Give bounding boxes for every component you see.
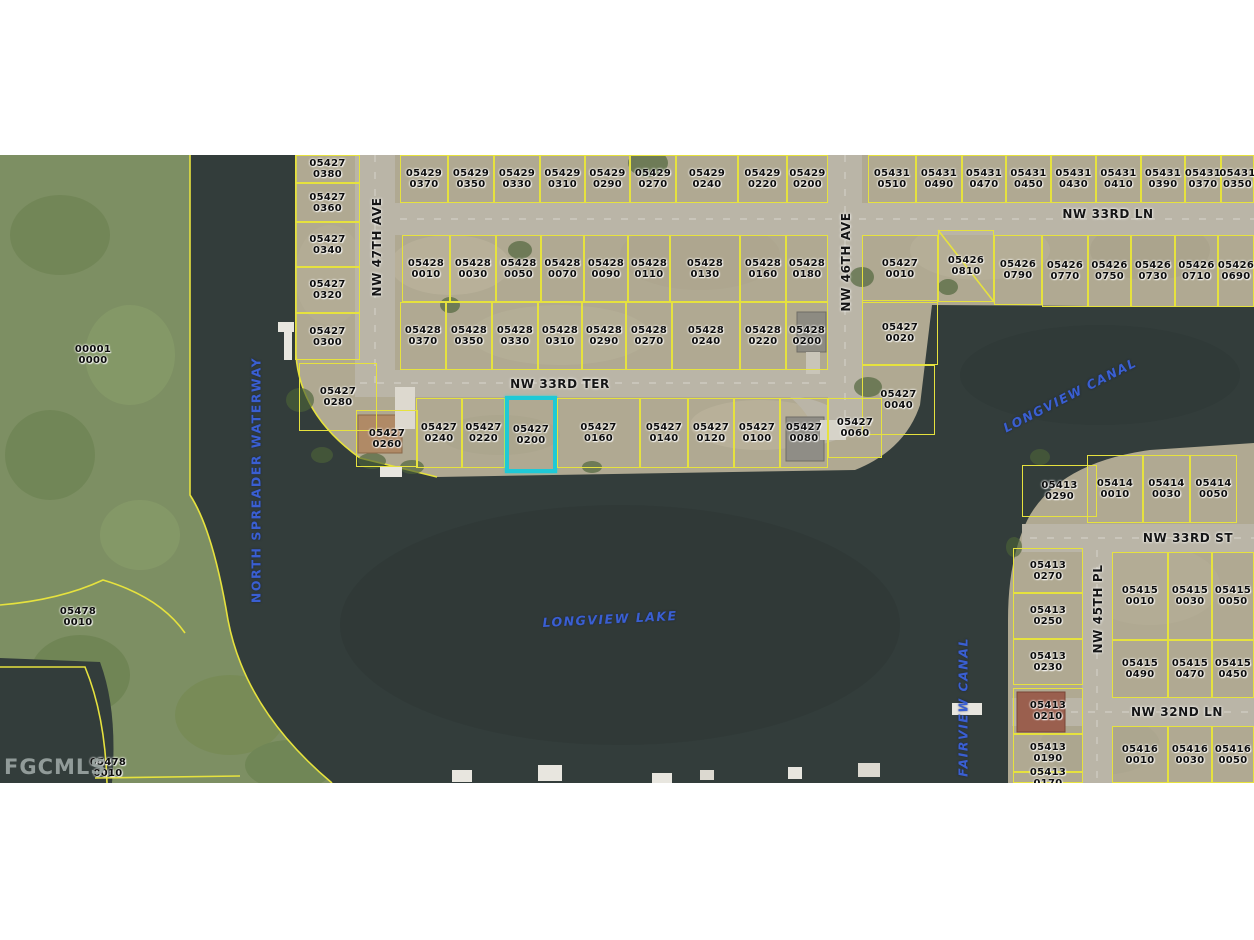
water-label-north-spreader-waterway: NORTH SPREADER WATERWAY	[249, 357, 264, 603]
water-label-fairview-canal: FAIRVIEW CANAL	[956, 637, 971, 777]
fgcmls-watermark: FGCMLS	[4, 755, 106, 779]
street-label-nw-45th-pl: NW 45TH PL	[1091, 564, 1105, 653]
water-label-longview-canal: LONGVIEW CANAL	[1001, 355, 1140, 435]
street-label-nw-47th-ave: NW 47TH AVE	[370, 197, 384, 296]
street-label-nw-46th-ave: NW 46TH AVE	[839, 212, 853, 311]
street-label-nw-33rd-ter: NW 33RD TER	[510, 377, 610, 391]
parcel-map: 0542703800542703600542703400542703200542…	[0, 155, 1254, 783]
street-label-nw-32nd-ln: NW 32ND LN	[1131, 705, 1223, 719]
water-label-longview-lake: LONGVIEW LAKE	[542, 608, 678, 630]
street-label-nw-33rd-ln: NW 33RD LN	[1062, 207, 1153, 221]
labels-layer: 000010000054780010054780010NW 47TH AVENW…	[0, 155, 1254, 783]
land-parcel-label-00001-0000: 000010000	[75, 344, 111, 366]
listing-map-screenshot: 0542703800542703600542703400542703200542…	[0, 0, 1254, 940]
land-parcel-label-05478-0010: 054780010	[60, 606, 96, 628]
street-label-nw-33rd-st: NW 33RD ST	[1143, 531, 1233, 545]
